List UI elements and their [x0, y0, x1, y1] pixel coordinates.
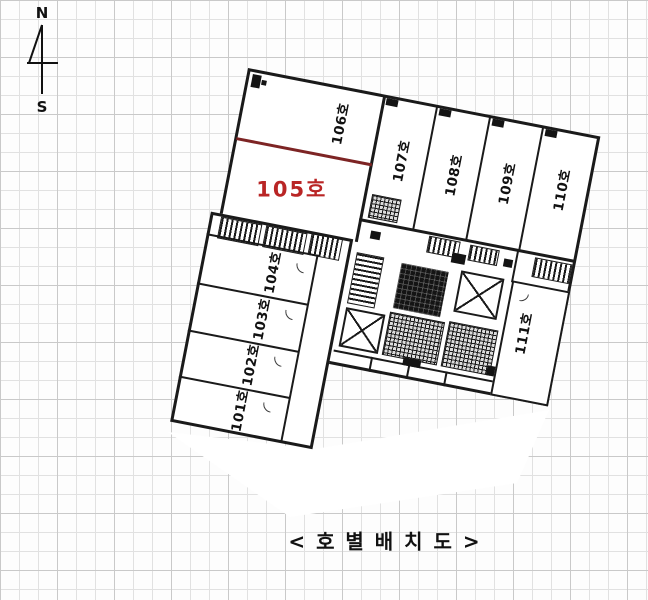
stairs-crossbox-icon — [453, 270, 504, 320]
door-mark — [261, 80, 267, 86]
fixture-mark — [503, 258, 513, 268]
north-label: N — [36, 4, 49, 22]
stairs-crossbox-icon — [339, 307, 386, 354]
elevator-core-block — [393, 263, 449, 317]
compass: N S — [14, 4, 72, 116]
fixture-mark — [370, 231, 381, 241]
room-label-105-highlighted: 105호 — [256, 174, 327, 204]
south-label: S — [37, 98, 48, 116]
unit-layout-page: N S — [0, 0, 648, 600]
plan-caption: < 호 별 배 치 도 > — [288, 526, 481, 555]
